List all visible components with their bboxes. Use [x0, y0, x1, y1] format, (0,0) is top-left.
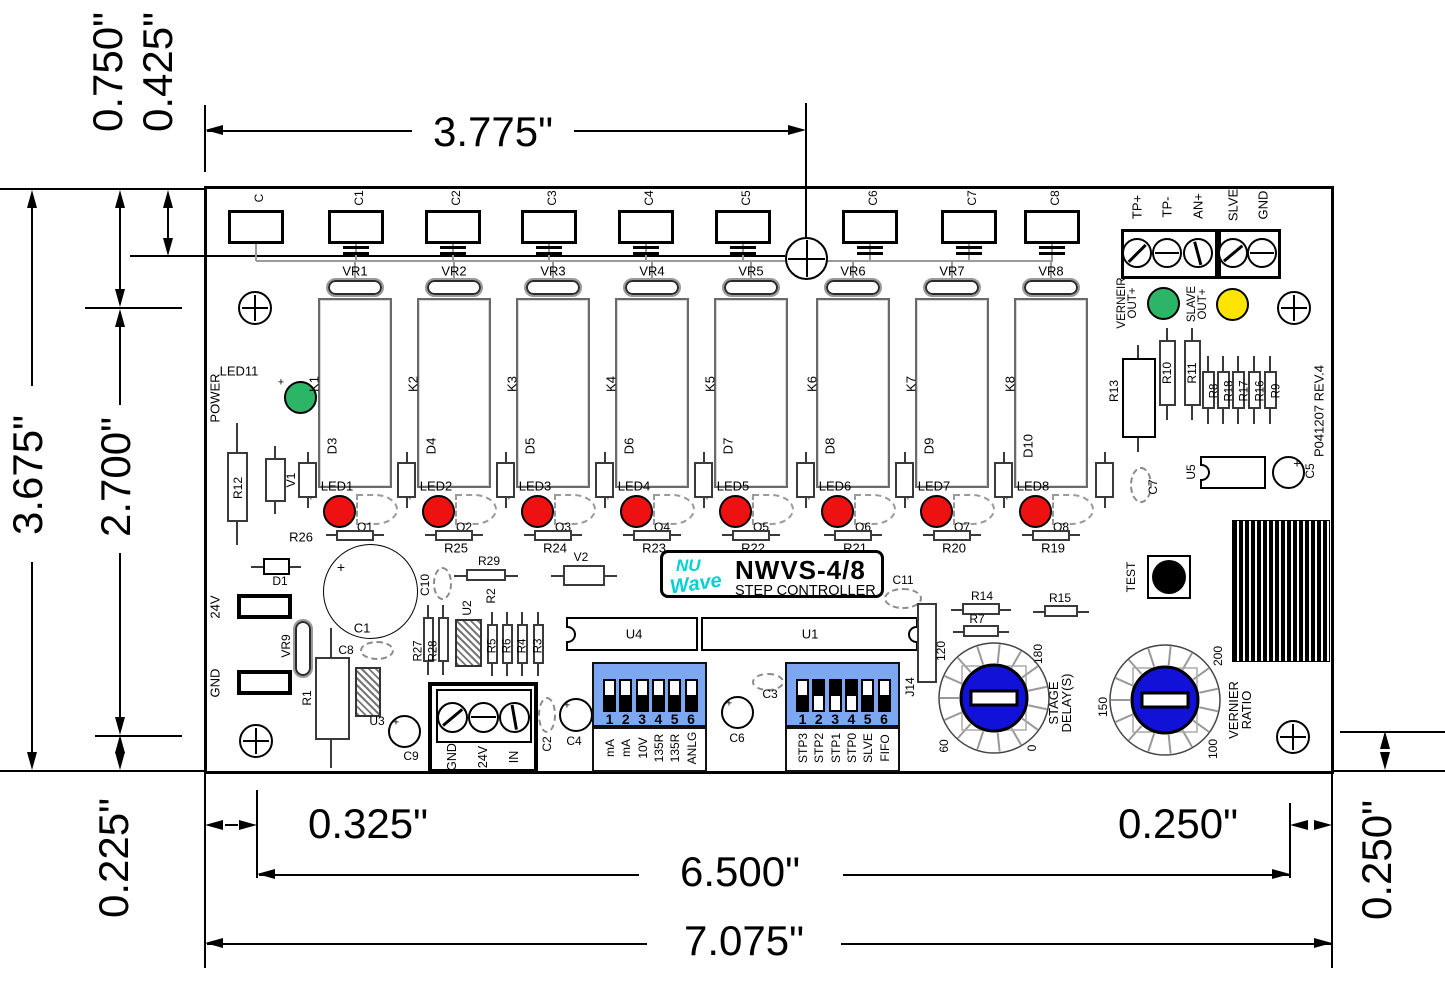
cap-symbol — [440, 252, 466, 255]
resistor-label: R22 — [741, 542, 765, 555]
driver-lead — [904, 452, 906, 462]
diode-label: D7 — [722, 438, 735, 455]
relay-label: K5 — [704, 376, 717, 392]
terminal-screw — [437, 702, 468, 733]
cap-symbol — [633, 252, 659, 255]
relay-label: K2 — [407, 376, 420, 392]
dim-arrowhead — [115, 190, 125, 208]
dip-function-label: FIFO — [879, 734, 891, 761]
varistor-v2 — [563, 565, 605, 586]
varistor-VR3 — [524, 278, 582, 297]
dim-line — [119, 553, 121, 717]
dip-number: 5 — [864, 712, 872, 726]
resistor-lead — [537, 664, 539, 676]
dip-number: 6 — [687, 712, 695, 726]
resistor-label: R21 — [843, 542, 867, 555]
led-LED8 — [1019, 495, 1052, 528]
dim-label-3775: 3.775" — [433, 111, 553, 153]
resistor-label: R20 — [942, 542, 966, 555]
dip-switch-slot[interactable] — [619, 679, 632, 712]
io-label-an-plus: AN+ — [1192, 193, 1205, 219]
dip-toggle-up[interactable] — [638, 681, 647, 695]
dip-switch-slot[interactable] — [878, 679, 891, 712]
resistor-lead — [442, 605, 444, 617]
dip-toggle-down[interactable] — [847, 696, 856, 710]
dim-arrowhead — [115, 717, 125, 735]
dip-function-label: STP2 — [813, 733, 825, 763]
resistor-lead — [506, 664, 508, 676]
pad-24v-label: 24V — [209, 595, 222, 618]
dim-arrowhead — [1314, 820, 1332, 830]
component-lead — [999, 631, 1009, 633]
driver-lead — [805, 452, 807, 462]
dim-line — [167, 206, 169, 241]
resistor-lead — [1237, 409, 1239, 424]
resistor-lead — [1269, 356, 1271, 371]
dip-switch-slot[interactable] — [812, 679, 825, 712]
terminal-label-24v: 24V — [477, 746, 490, 768]
resistor-lead — [521, 664, 523, 676]
component-lead — [236, 522, 238, 545]
screw-slot — [471, 716, 496, 719]
capacitor-C2 — [425, 210, 481, 244]
resistor-lead — [1207, 409, 1209, 424]
terminal-screw — [468, 702, 499, 733]
capacitor-label: C4 — [566, 735, 581, 747]
dim-arrowhead — [115, 309, 125, 327]
heatsink — [1232, 520, 1330, 662]
io-label-tp-minus: TP- — [1161, 197, 1174, 218]
cap-symbol — [956, 252, 982, 255]
relay-K2 — [417, 298, 491, 488]
rev-text: P041207 REV.4 — [1313, 365, 1326, 457]
component-lead — [605, 575, 617, 577]
plus-mark: + — [278, 378, 284, 389]
resistor-label: R5 — [487, 639, 499, 654]
dip-switch-slot[interactable] — [845, 679, 858, 712]
dim-label-0250-right: 0.250" — [1356, 800, 1398, 920]
rotary-vernier-ratio[interactable] — [1105, 640, 1225, 760]
component-lead — [951, 609, 962, 611]
vernier-out-label: VERNEIROUT+ — [1117, 277, 1139, 328]
cap-symbol — [440, 246, 466, 249]
capacitor-label: C — [253, 194, 265, 203]
varistor-label: VR9 — [280, 634, 292, 657]
dip-function-label: mA — [620, 739, 632, 757]
io-label-slve: SLVE — [1227, 189, 1240, 221]
varistor-VR8 — [1022, 278, 1080, 297]
silkscreen-logo-box: NU Wave NWVS-4/8 STEP CONTROLLER — [660, 550, 884, 598]
driver-lead — [904, 498, 906, 508]
dim-arrowhead — [163, 238, 173, 256]
resistor-lead — [722, 534, 732, 536]
resistor-lead — [427, 662, 429, 675]
dim-line — [841, 943, 1332, 945]
diode-label: D9 — [923, 438, 936, 455]
led-label: LED6 — [819, 480, 852, 493]
dim-arrowhead — [239, 820, 257, 830]
component-lead — [1191, 328, 1193, 340]
dim-arrowhead — [205, 820, 223, 830]
driver-transistor — [496, 462, 515, 498]
resistor-lead — [524, 534, 534, 536]
varistor-vr9 — [293, 619, 313, 678]
dip-function-label: STP1 — [830, 733, 842, 763]
varistor-VR1 — [326, 278, 384, 297]
vr-label: VR3 — [540, 265, 565, 278]
vernier-out-text: OUT — [1127, 294, 1139, 318]
dip-number: 1 — [606, 712, 614, 726]
driver-transistor — [895, 462, 914, 498]
dip-number: 6 — [880, 712, 888, 726]
mount-hole-cross — [1280, 736, 1306, 738]
plus-mark: + — [1197, 289, 1209, 296]
dim-label-0750: 0.750" — [87, 12, 129, 132]
component-lead — [1166, 406, 1168, 420]
cap-symbol — [343, 246, 369, 249]
driver-lead — [406, 452, 408, 462]
capacitor-label: C11 — [892, 574, 913, 586]
cap-symbol — [857, 252, 883, 255]
varistor-VR5 — [722, 278, 780, 297]
capacitor-C4 — [618, 210, 674, 244]
dip-function-label: 10V — [637, 737, 649, 758]
capacitor-label: C2 — [541, 736, 553, 751]
dim-line — [207, 943, 647, 945]
component-lead — [1137, 438, 1139, 452]
resistor-lead — [971, 534, 981, 536]
cap-symbol — [633, 246, 659, 249]
varistor-v1 — [265, 458, 286, 502]
dip-number: 1 — [799, 712, 807, 726]
component-lead — [274, 502, 276, 514]
resistor-label: R13 — [1108, 380, 1120, 402]
rotary-title-vernier-ratio: VERNIERRATIO — [1227, 681, 1253, 739]
resistor-label: R11 — [1186, 362, 1198, 383]
power-label: POWER — [209, 373, 222, 422]
component-lead — [251, 566, 263, 568]
terminal-screw — [1218, 238, 1248, 268]
resistor-lead — [1253, 356, 1255, 371]
resistor-R23 — [633, 530, 671, 541]
resistor-lead — [473, 534, 483, 536]
dip-number: 3 — [638, 712, 646, 726]
dip-function-label: SLVE — [862, 733, 874, 763]
dip-toggle-up[interactable] — [670, 681, 679, 695]
dip-function-label: 135R — [653, 734, 665, 763]
capacitor-C7 — [941, 210, 997, 244]
relay-label: K8 — [1004, 376, 1017, 392]
driver-lead — [1003, 498, 1005, 508]
resistor-lead — [1222, 356, 1224, 371]
capacitor-C — [228, 210, 284, 244]
resistor-r1 — [315, 657, 350, 740]
driver-lead — [406, 498, 408, 508]
dip-toggle-down[interactable] — [831, 696, 840, 710]
driver-transistor — [694, 462, 713, 498]
relay-K8 — [1014, 298, 1088, 488]
dip-switch-slot[interactable] — [796, 679, 809, 712]
resistor-lead — [923, 534, 933, 536]
resistor-label: R15 — [1049, 592, 1071, 604]
dip-switch-slot[interactable] — [652, 679, 665, 712]
cap-symbol — [730, 246, 756, 249]
component-lead — [330, 628, 332, 657]
dim-target-crosshair — [785, 237, 828, 280]
vr-label: VR5 — [738, 265, 763, 278]
dim-arrowhead — [1380, 731, 1390, 749]
resistor-label: R27 — [413, 640, 425, 661]
mount-hole — [1276, 720, 1310, 754]
mount-hole-cross — [242, 307, 268, 309]
dim-line — [31, 206, 33, 386]
dim-arrowhead — [163, 190, 173, 208]
dim-arrowhead — [1380, 752, 1390, 770]
dip-toggle-up[interactable] — [654, 681, 663, 695]
resistor-label: R23 — [642, 542, 666, 555]
resistor-lead — [1070, 534, 1080, 536]
relay-K7 — [915, 298, 989, 488]
pad-gnd-label: GND — [209, 669, 222, 698]
dim-arrowhead — [257, 869, 275, 879]
relay-label: K7 — [905, 376, 918, 392]
screw-slot — [442, 708, 463, 726]
resistor-lead — [1022, 534, 1032, 536]
led-LED5 — [719, 495, 752, 528]
resistor-label: R14 — [971, 590, 993, 602]
test-label: TEST — [1125, 562, 1137, 593]
resistor-label: R19 — [1041, 542, 1065, 555]
terminal-label-in: IN — [508, 751, 521, 764]
dip-switch-slot[interactable] — [685, 679, 698, 712]
slave-out-label: SLAVEOUT+ — [1187, 286, 1209, 322]
cap-symbol — [1039, 246, 1065, 249]
capacitor-label: C7 — [966, 190, 978, 205]
rotary-stage-delay[interactable] — [934, 638, 1054, 758]
dip-toggle-up[interactable] — [687, 681, 696, 695]
resistor-label: R2 — [485, 588, 497, 603]
relay-label: K6 — [806, 376, 819, 392]
terminal-screw — [1122, 238, 1152, 268]
driver-transistor — [1095, 462, 1114, 498]
dim-arrowhead — [115, 289, 125, 307]
dim-line — [204, 105, 206, 172]
mount-hole-cross — [1281, 307, 1307, 309]
driver-transistor — [796, 462, 815, 498]
resistor-lead — [521, 612, 523, 624]
driver-transistor — [298, 462, 317, 498]
resistor-lead — [537, 612, 539, 624]
component-lead — [454, 575, 466, 577]
rotary-title-text: RATIO — [1239, 691, 1254, 730]
led-LED7 — [920, 495, 953, 528]
dim-arrowhead — [1290, 820, 1308, 830]
header-label: J14 — [904, 677, 916, 696]
led-LED2 — [422, 495, 455, 528]
diode-label: D10 — [1022, 434, 1035, 458]
resistor-lead — [770, 534, 780, 536]
dip-toggle-up[interactable] — [605, 681, 614, 695]
dip-number: 4 — [847, 712, 855, 726]
driver-lead — [505, 498, 507, 508]
screw-slot — [1250, 252, 1274, 255]
dim-line — [225, 824, 238, 826]
capacitor-C3 — [521, 210, 577, 244]
capacitor-label: C2 — [450, 190, 462, 205]
cap-symbol — [730, 252, 756, 255]
diode-label: D1 — [272, 575, 287, 587]
led-LED6 — [821, 495, 854, 528]
dim-line — [259, 874, 639, 876]
resistor-lead — [1269, 409, 1271, 424]
regulator-u2 — [455, 619, 482, 667]
resistor-r15 — [1044, 605, 1078, 617]
dip-switch-slot[interactable] — [636, 679, 649, 712]
dim-line — [119, 206, 121, 292]
io-label-tp-plus: TP+ — [1131, 195, 1144, 219]
vr-label: VR2 — [441, 265, 466, 278]
diode-label: D4 — [425, 438, 438, 455]
dip-function-label: STP3 — [797, 733, 809, 763]
resistor-label: R12 — [232, 477, 244, 499]
dim-line — [1340, 731, 1445, 733]
led-label: LED3 — [519, 480, 552, 493]
io-label-gnd: GND — [1257, 191, 1270, 220]
dim-arrowhead — [788, 125, 806, 135]
resistor-lead — [374, 534, 384, 536]
resistor-lead — [326, 534, 336, 536]
dip-toggle-up[interactable] — [863, 681, 872, 695]
component-lead — [290, 566, 301, 568]
dim-line — [207, 130, 412, 132]
dip-switch-slot[interactable] — [829, 679, 842, 712]
resistor-label: R6 — [502, 639, 514, 654]
resistor-R24 — [534, 530, 572, 541]
test-button[interactable] — [1152, 560, 1186, 594]
dim-line — [85, 307, 182, 309]
screw-slot — [1155, 252, 1179, 255]
diode-d1 — [263, 558, 290, 575]
resistor-label: R4 — [517, 639, 529, 654]
component-lead — [506, 575, 518, 577]
power-led-ref: LED11 — [220, 365, 259, 378]
resistor-lead — [824, 534, 834, 536]
dip-function-label: mA — [604, 739, 616, 757]
resistor-lead — [491, 612, 493, 624]
dim-line — [256, 790, 258, 878]
dim-label-0250-bottom: 0.250" — [1118, 803, 1238, 845]
plus-mark: + — [726, 699, 732, 710]
resistor-label: R24 — [543, 542, 567, 555]
resistor-lead — [1253, 409, 1255, 424]
dip-toggle-up[interactable] — [621, 681, 630, 695]
resistor-lead — [491, 664, 493, 676]
dip-toggle-down[interactable] — [814, 696, 823, 710]
dip-number: 3 — [831, 712, 839, 726]
resistor-label: R9 — [1271, 384, 1283, 399]
crosshair-line — [788, 258, 825, 260]
pcb-trace — [256, 260, 1053, 262]
dim-arrowhead — [115, 752, 125, 770]
dip-toggle-up[interactable] — [880, 681, 889, 695]
relay-label: K1 — [308, 376, 321, 392]
led-label: LED7 — [918, 480, 951, 493]
vr-label: VR8 — [1038, 265, 1063, 278]
capacitor-label: C7 — [1147, 479, 1159, 494]
component-lead — [1166, 328, 1168, 340]
screw-slot — [1194, 241, 1203, 265]
dip-number: 5 — [671, 712, 679, 726]
resistor-lead — [872, 534, 882, 536]
resistor-lead — [623, 534, 633, 536]
driver-lead — [1104, 498, 1106, 508]
ic-label: U5 — [1185, 464, 1197, 479]
resistor-label: R26 — [289, 531, 313, 544]
dip-number: 2 — [815, 712, 823, 726]
driver-lead — [604, 452, 606, 462]
capacitor-label: C6 — [729, 732, 744, 744]
model-name: NWVS-4/8 — [735, 555, 866, 586]
dim-label-6500: 6.500" — [680, 851, 800, 893]
dip-switch-slot[interactable] — [603, 679, 616, 712]
dip-toggle-up[interactable] — [798, 681, 807, 695]
dip-switch-slot[interactable] — [861, 679, 874, 712]
led-label: LED1 — [321, 480, 354, 493]
terminal-screw — [499, 702, 530, 733]
relay-K5 — [714, 298, 788, 488]
relay-K4 — [615, 298, 689, 488]
slave-out-text: OUT — [1197, 295, 1209, 319]
resistor-R19 — [1032, 530, 1070, 541]
plus-mark: + — [564, 701, 570, 712]
relay-K1 — [318, 298, 392, 488]
driver-lead — [604, 498, 606, 508]
led-LED3 — [521, 495, 554, 528]
led-LED4 — [620, 495, 653, 528]
resistor-label: R7 — [969, 613, 984, 625]
dim-arrowhead — [205, 125, 223, 135]
component-lead — [953, 631, 963, 633]
cap-symbol — [343, 252, 369, 255]
cap-symbol — [536, 246, 562, 249]
led-label: LED5 — [717, 480, 750, 493]
resistor-label: R1 — [301, 690, 313, 705]
resistor-label: R25 — [444, 542, 468, 555]
terminal-screw — [1247, 238, 1277, 268]
resistor-lead — [425, 534, 435, 536]
resistor-lead — [572, 534, 582, 536]
varistor-VR4 — [623, 278, 681, 297]
vr-label: VR7 — [939, 265, 964, 278]
dim-line — [574, 130, 790, 132]
ic-label: U3 — [369, 715, 384, 727]
cap-symbol — [857, 246, 883, 249]
driver-lead — [505, 452, 507, 462]
ic-label: U1 — [802, 628, 819, 641]
resistor-label: R10 — [1161, 362, 1173, 384]
dip-switch-slot[interactable] — [668, 679, 681, 712]
dip-number: 2 — [622, 712, 630, 726]
model-subtitle: STEP CONTROLLER — [735, 583, 876, 599]
dip-function-label: 135R — [669, 734, 681, 763]
pad-24v — [237, 594, 292, 619]
capacitor-label: C9 — [403, 750, 418, 762]
dim-arrowhead — [205, 938, 223, 948]
terminal-label-gnd: GND — [446, 743, 459, 771]
capacitor-label: C1 — [354, 622, 371, 635]
mount-hole — [238, 291, 272, 325]
component-lead — [1078, 611, 1089, 613]
